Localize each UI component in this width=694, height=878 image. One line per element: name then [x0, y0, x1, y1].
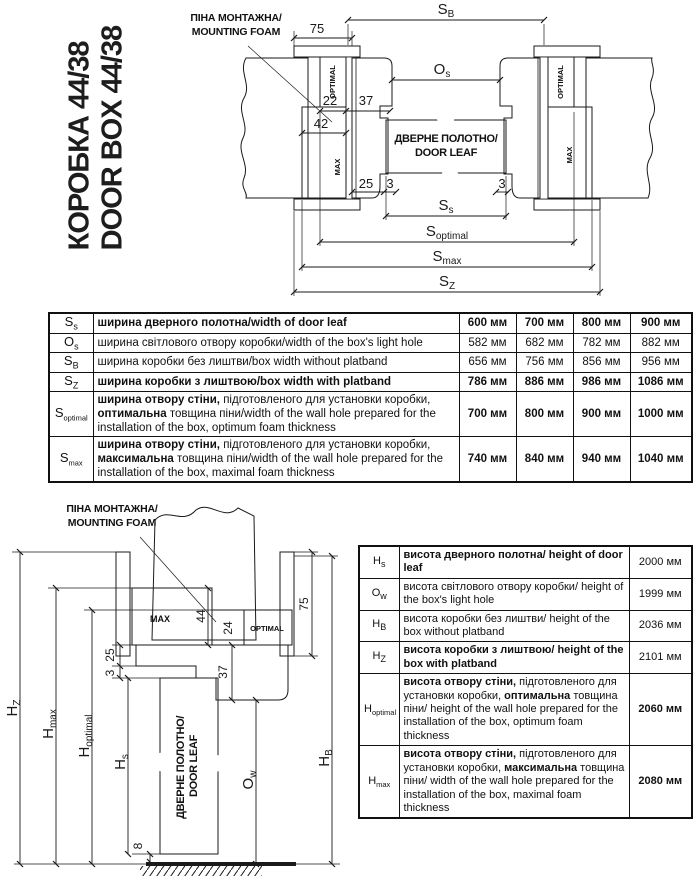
- header-jamb: [136, 645, 288, 700]
- value-cell: 856 мм: [573, 353, 630, 373]
- value-cell: 986 мм: [573, 372, 630, 392]
- table-row: Hmaxвисота отвору стіни, підготовленого …: [359, 746, 692, 819]
- width-table: Ssширина дверного полотна/width of door …: [48, 312, 693, 483]
- table-row: HBвисота коробки без лиштви/ height of t…: [359, 610, 692, 642]
- table-row: SZширина коробки з лиштвою/box width wit…: [49, 372, 692, 392]
- dim-75: 75: [310, 21, 324, 36]
- description-cell: висота коробки з лиштвою/ height of the …: [399, 642, 629, 674]
- value-cell: 740 мм: [459, 437, 516, 483]
- value-cell: 782 мм: [573, 333, 630, 353]
- value-cell: 1040 мм: [630, 437, 692, 483]
- symbol-cell: Hoptimal: [359, 674, 399, 746]
- vertical-section-drawing: MAX OPTIMAL ДВЕРНЕ ПОЛОТНО/ DOOR LEAF: [0, 500, 360, 878]
- value-cell: 600 мм: [459, 313, 516, 333]
- symbol-cell: Smax: [49, 437, 93, 483]
- dim-37: 37: [359, 93, 373, 108]
- foam-optimal-label: OPTIMAL: [250, 624, 284, 633]
- door-leaf-label-line1: ДВЕРНЕ ПОЛОТНО/: [394, 133, 497, 145]
- dim-hmax: Hmax: [40, 709, 59, 739]
- foam-max-label: MAX: [565, 147, 574, 164]
- dim-hz: HZ: [4, 700, 23, 717]
- dim-25: 25: [103, 648, 117, 662]
- value-cell: 840 мм: [516, 437, 573, 483]
- value-cell: 900 мм: [573, 392, 630, 437]
- value-cell: 2080 мм: [629, 746, 692, 819]
- dim-sb: SB: [438, 1, 455, 20]
- description-cell: висота отвору стіни, підготовленого для …: [399, 746, 629, 819]
- dim-42: 42: [314, 116, 328, 131]
- symbol-cell: HB: [359, 610, 399, 642]
- value-cell: 2000 мм: [629, 546, 692, 578]
- dim-44: 44: [194, 609, 208, 623]
- description-cell: ширина коробки з лиштвою/box width with …: [93, 372, 459, 392]
- value-cell: 800 мм: [573, 313, 630, 333]
- symbol-cell: Ss: [49, 313, 93, 333]
- door-box-spec-sheet: { "title": {"line1": "КОРОБКА 44/38", "l…: [0, 0, 694, 878]
- value-cell: 786 мм: [459, 372, 516, 392]
- table-row: Soptimalширина отвору стіни, підготовлен…: [49, 392, 692, 437]
- value-cell: 900 мм: [630, 313, 692, 333]
- description-cell: ширина коробки без лиштви/box width with…: [93, 353, 459, 373]
- value-cell: 800 мм: [516, 392, 573, 437]
- description-cell: ширина отвору стіни, підготовленого для …: [93, 437, 459, 483]
- symbol-cell: SB: [49, 353, 93, 373]
- floor-hatching: [140, 866, 262, 876]
- value-cell: 2101 мм: [629, 642, 692, 674]
- description-cell: висота коробки без лиштви/ height of the…: [399, 610, 629, 642]
- table-row: Smaxширина отвору стіни, підготовленого …: [49, 437, 692, 483]
- dim-3-right: 3: [498, 176, 505, 191]
- description-cell: ширина світлового отвору коробки/width o…: [93, 333, 459, 353]
- table-row: HZвисота коробки з лиштвою/ height of th…: [359, 642, 692, 674]
- value-cell: 956 мм: [630, 353, 692, 373]
- description-cell: висота дверного полотна/ height of door …: [399, 546, 629, 578]
- table-row: Osширина світлового отвору коробки/width…: [49, 333, 692, 353]
- value-cell: 700 мм: [459, 392, 516, 437]
- description-cell: ширина отвору стіни, підготовленого для …: [93, 392, 459, 437]
- value-cell: 1000 мм: [630, 392, 692, 437]
- dim-os: Os: [434, 61, 451, 80]
- dim-hb: HB: [316, 749, 335, 767]
- right-brick-wall: [586, 58, 655, 198]
- value-cell: 940 мм: [573, 437, 630, 483]
- dim-hoptimal: Hoptimal: [76, 714, 95, 757]
- value-cell: 582 мм: [459, 333, 516, 353]
- symbol-cell: Hmax: [359, 746, 399, 819]
- door-leaf-section: ДВЕРНЕ ПОЛОТНО/ DOOR LEAF: [158, 678, 220, 854]
- table-row: Hoptimalвисота отвору стіни, підготовлен…: [359, 674, 692, 746]
- dim-ss: Ss: [438, 197, 453, 216]
- height-table-body: Hsвисота дверного полотна/ height of doo…: [359, 546, 692, 818]
- foam-optimal-label: OPTIMAL: [556, 65, 565, 99]
- symbol-cell: HZ: [359, 642, 399, 674]
- table-row: SBширина коробки без лиштви/box width wi…: [49, 353, 692, 373]
- width-table-body: Ssширина дверного полотна/width of door …: [49, 313, 692, 482]
- dim-ow: Ow: [240, 770, 259, 790]
- dim-3: 3: [103, 669, 117, 676]
- description-cell: ширина дверного полотна/width of door le…: [93, 313, 459, 333]
- height-table: Hsвисота дверного полотна/ height of doo…: [358, 545, 693, 819]
- value-cell: 2036 мм: [629, 610, 692, 642]
- dim-hs: Hs: [112, 754, 131, 770]
- box-profile-strip: [346, 57, 356, 199]
- value-cell: 1999 мм: [629, 578, 692, 610]
- door-leaf-label-line2: DOOR LEAF: [415, 147, 478, 159]
- dim-22: 22: [323, 93, 337, 108]
- symbol-cell: Hs: [359, 546, 399, 578]
- dim-75: 75: [297, 597, 311, 611]
- description-cell: висота отвору стіни, підготовленого для …: [399, 674, 629, 746]
- left-brick-wall: [241, 58, 308, 198]
- dim-24: 24: [221, 621, 235, 635]
- value-cell: 682 мм: [516, 333, 573, 353]
- dim-soptimal: Soptimal: [426, 223, 468, 242]
- table-row: Owвисота світлового отвору коробки/ heig…: [359, 578, 692, 610]
- dim-25: 25: [359, 176, 373, 191]
- value-cell: 700 мм: [516, 313, 573, 333]
- symbol-cell: Soptimal: [49, 392, 93, 437]
- symbol-cell: Ow: [359, 578, 399, 610]
- value-cell: 1086 мм: [630, 372, 692, 392]
- horizontal-section-drawing: OPTIMAL MAX OPTIMAL MAX ДВЕРНЕ ПОЛОТНО/ …: [0, 0, 694, 312]
- table-row: Ssширина дверного полотна/width of door …: [49, 313, 692, 333]
- platband-profile: [116, 552, 130, 656]
- door-leaf-section: ДВЕРНЕ ПОЛОТНО/ DOOR LEAF: [386, 118, 506, 175]
- dim-smax: Smax: [433, 248, 462, 267]
- value-cell: 882 мм: [630, 333, 692, 353]
- foam-max-label: MAX: [333, 159, 342, 176]
- value-cell: 656 мм: [459, 353, 516, 373]
- foam-max-label: MAX: [150, 614, 170, 624]
- dim-sz: SZ: [439, 273, 455, 292]
- description-cell: висота світлового отвору коробки/ height…: [399, 578, 629, 610]
- dim-3-left: 3: [386, 176, 393, 191]
- value-cell: 756 мм: [516, 353, 573, 373]
- foam-leader-line: [140, 537, 216, 622]
- dim-8: 8: [131, 842, 145, 849]
- symbol-cell: Os: [49, 333, 93, 353]
- dim-37: 37: [216, 665, 230, 679]
- door-leaf-label: ДВЕРНЕ ПОЛОТНО/ DOOR LEAF: [175, 713, 200, 819]
- value-cell: 886 мм: [516, 372, 573, 392]
- table-row: Hsвисота дверного полотна/ height of doo…: [359, 546, 692, 578]
- value-cell: 2060 мм: [629, 674, 692, 746]
- symbol-cell: SZ: [49, 372, 93, 392]
- foam-blocks: MAX OPTIMAL: [132, 588, 292, 645]
- dimension-labels: 44 24 75 25 3 37 8 HZ Hmax Hoptimal Hs O…: [4, 597, 335, 849]
